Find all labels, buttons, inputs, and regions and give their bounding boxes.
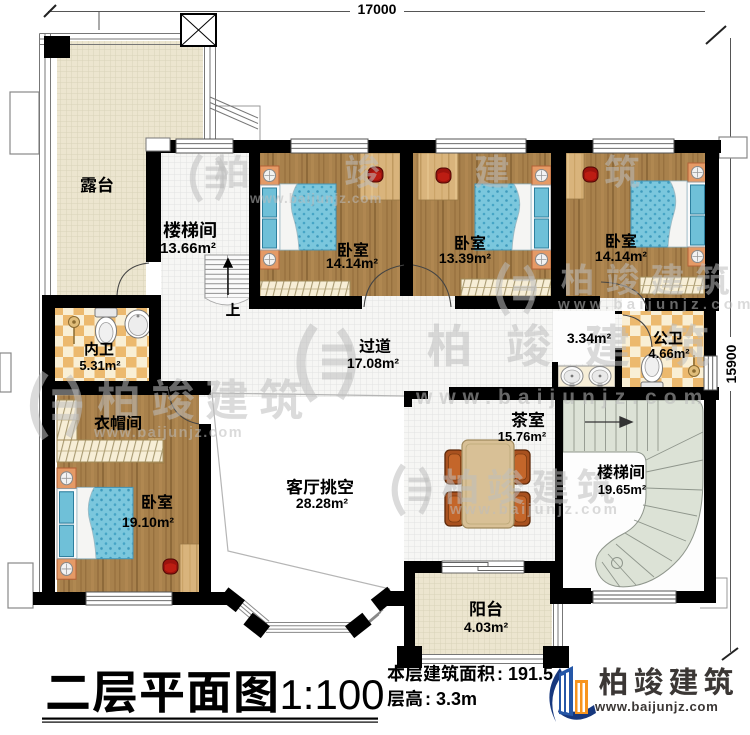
svg-text:: 3.3m: : 3.3m (425, 689, 477, 709)
svg-text:28.28m²: 28.28m² (296, 495, 348, 511)
svg-text:www.baijunjz.com: www.baijunjz.com (249, 191, 383, 206)
svg-text:13.39m²: 13.39m² (439, 250, 491, 266)
svg-text:www.baijunjz.com: www.baijunjz.com (594, 699, 718, 714)
svg-text:www.baijunjz.com: www.baijunjz.com (557, 296, 750, 313)
svg-text:17.08m²: 17.08m² (347, 355, 399, 371)
svg-text:www.baijunjz.com: www.baijunjz.com (93, 425, 243, 441)
svg-text:1:100: 1:100 (279, 671, 384, 718)
svg-text:www.baijunjz.com: www.baijunjz.com (449, 501, 619, 518)
svg-text:3.34m²: 3.34m² (567, 330, 612, 346)
svg-text:4.03m²: 4.03m² (464, 619, 509, 635)
svg-text:www.baijunjz.com: www.baijunjz.com (415, 386, 709, 409)
svg-text:5.31m²: 5.31m² (79, 358, 121, 373)
svg-text:15.76m²: 15.76m² (498, 429, 547, 444)
svg-text:14.14m²: 14.14m² (326, 255, 378, 271)
svg-text:15900: 15900 (723, 344, 739, 383)
svg-text:14.14m²: 14.14m² (595, 248, 647, 264)
svg-text:19.10m²: 19.10m² (122, 514, 174, 530)
svg-text:4.66m²: 4.66m² (648, 346, 690, 361)
svg-text:13.66m²: 13.66m² (160, 240, 216, 257)
svg-text:17000: 17000 (358, 1, 397, 17)
svg-text:: 191.5: : 191.5 (497, 664, 553, 684)
svg-text:19.65m²: 19.65m² (598, 482, 647, 497)
